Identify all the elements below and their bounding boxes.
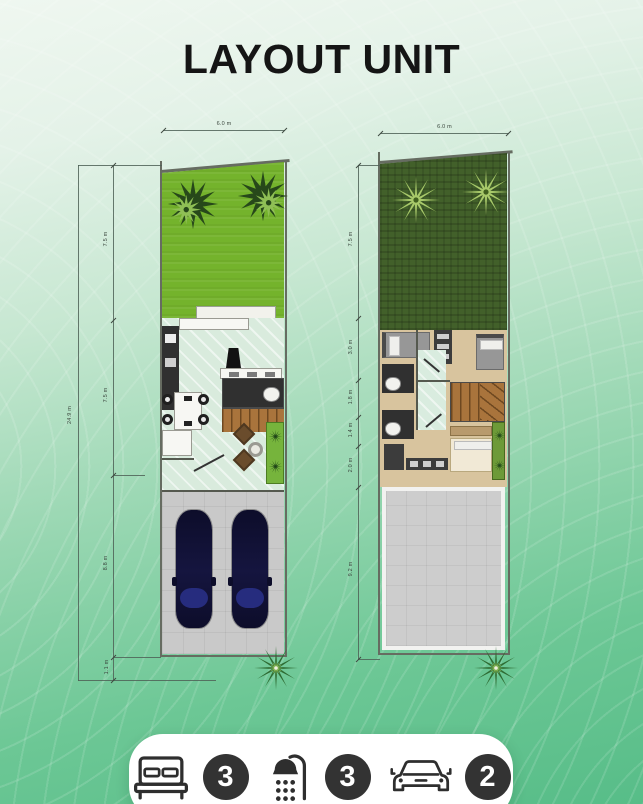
bedroom-level	[380, 330, 507, 487]
pillow	[389, 336, 400, 356]
bed-icon	[132, 753, 190, 801]
bed	[450, 438, 492, 472]
plant-icon	[493, 459, 506, 472]
tree-icon	[236, 169, 290, 223]
corner-plant-icon	[472, 644, 520, 692]
dim-line	[113, 165, 114, 681]
pillow	[454, 441, 492, 450]
bathroom	[382, 410, 414, 439]
car-top-view	[176, 510, 212, 628]
dim-tick	[506, 131, 512, 137]
guest-bathroom	[222, 378, 284, 408]
stove	[165, 358, 176, 367]
dim-segment: 2.0 m	[348, 450, 354, 480]
bathroom	[382, 364, 414, 393]
dim-segment: 8.8 m	[103, 548, 109, 578]
table-setting	[184, 396, 192, 401]
dim-segment: 1.1 m	[104, 652, 110, 682]
car-icon	[390, 754, 452, 800]
lower-roof-void	[382, 487, 505, 650]
dim-segment: 9.2 m	[348, 554, 354, 584]
dim-segment: 1.8 m	[348, 382, 354, 412]
upper-floor-plan	[378, 152, 510, 655]
planter-strip	[492, 422, 505, 480]
garage-count-badge: 2	[465, 754, 511, 800]
tv	[226, 348, 241, 368]
table-setting	[184, 421, 192, 426]
dim-segment: 7.5 m	[103, 380, 109, 410]
bedroom-stat: 3	[132, 753, 249, 801]
car-windshield	[180, 588, 208, 608]
pantry-counter	[162, 430, 192, 456]
layout-unit-poster: LAYOUT UNIT	[0, 0, 643, 804]
decor	[229, 372, 239, 377]
shelf	[437, 334, 449, 339]
bedroom-count-badge: 3	[203, 754, 249, 800]
pillow	[480, 340, 503, 350]
interior-wall	[416, 380, 450, 382]
corner-plant-icon	[252, 644, 300, 692]
back-counter	[179, 318, 249, 330]
dining-chair	[198, 414, 209, 425]
plant-icon	[268, 459, 283, 474]
dim-ext	[358, 659, 380, 660]
bathroom-stat: 3	[268, 750, 371, 804]
dim-ext	[358, 165, 380, 166]
sink	[165, 334, 176, 343]
shelf	[437, 344, 449, 349]
bench	[406, 458, 448, 470]
door-swing	[194, 454, 225, 472]
bed	[476, 334, 504, 370]
dim-ext	[78, 165, 162, 166]
dim-line	[78, 165, 79, 681]
plant-icon	[268, 429, 283, 444]
dim-left-width: 6.0 m	[163, 121, 285, 127]
desk	[450, 426, 492, 436]
cushion	[410, 461, 418, 467]
dining-chair	[162, 394, 173, 405]
cushion	[423, 461, 431, 467]
plant-icon	[493, 429, 506, 442]
bathroom-count-badge: 3	[325, 754, 371, 800]
tree-icon	[166, 177, 220, 231]
toilet	[263, 387, 280, 402]
dim-left-total: 24.9 m	[67, 400, 73, 430]
car-top-view	[232, 510, 268, 628]
dim-segment: 7.5 m	[103, 224, 109, 254]
dining-chair	[162, 414, 173, 425]
interior-wall	[162, 458, 194, 460]
stair-winder	[480, 383, 504, 420]
car-windshield	[236, 588, 264, 608]
dim-segment: 1.4 m	[348, 415, 354, 445]
dim-ext	[78, 680, 216, 681]
dim-segment: 3.0 m	[348, 332, 354, 362]
palm-icon	[390, 174, 442, 226]
dim-tick	[282, 128, 288, 134]
dim-segment: 7.5 m	[348, 224, 354, 254]
dim-line	[358, 165, 359, 660]
planter-strip	[266, 422, 284, 484]
toilet	[385, 377, 401, 391]
dim-line	[163, 130, 285, 131]
toilet	[385, 422, 401, 436]
living-dining-area	[162, 318, 284, 490]
decor	[247, 372, 257, 377]
dim-line	[380, 133, 509, 134]
shower-icon	[268, 750, 312, 804]
palm-icon	[460, 166, 512, 218]
wardrobe	[384, 444, 404, 470]
page-title: LAYOUT UNIT	[0, 36, 643, 83]
dim-right-width: 6.0 m	[380, 124, 509, 130]
staircase	[450, 382, 505, 422]
hallway	[418, 350, 446, 430]
cushion	[436, 461, 444, 467]
dim-ext	[113, 475, 145, 476]
dining-chair	[198, 394, 209, 405]
dim-ext	[113, 657, 161, 658]
decor	[265, 372, 275, 377]
carport-driveway	[162, 490, 284, 654]
unit-stats-bar: 3 3 2	[129, 734, 513, 804]
garage-stat: 2	[390, 754, 511, 800]
ground-floor-plan	[160, 161, 287, 657]
